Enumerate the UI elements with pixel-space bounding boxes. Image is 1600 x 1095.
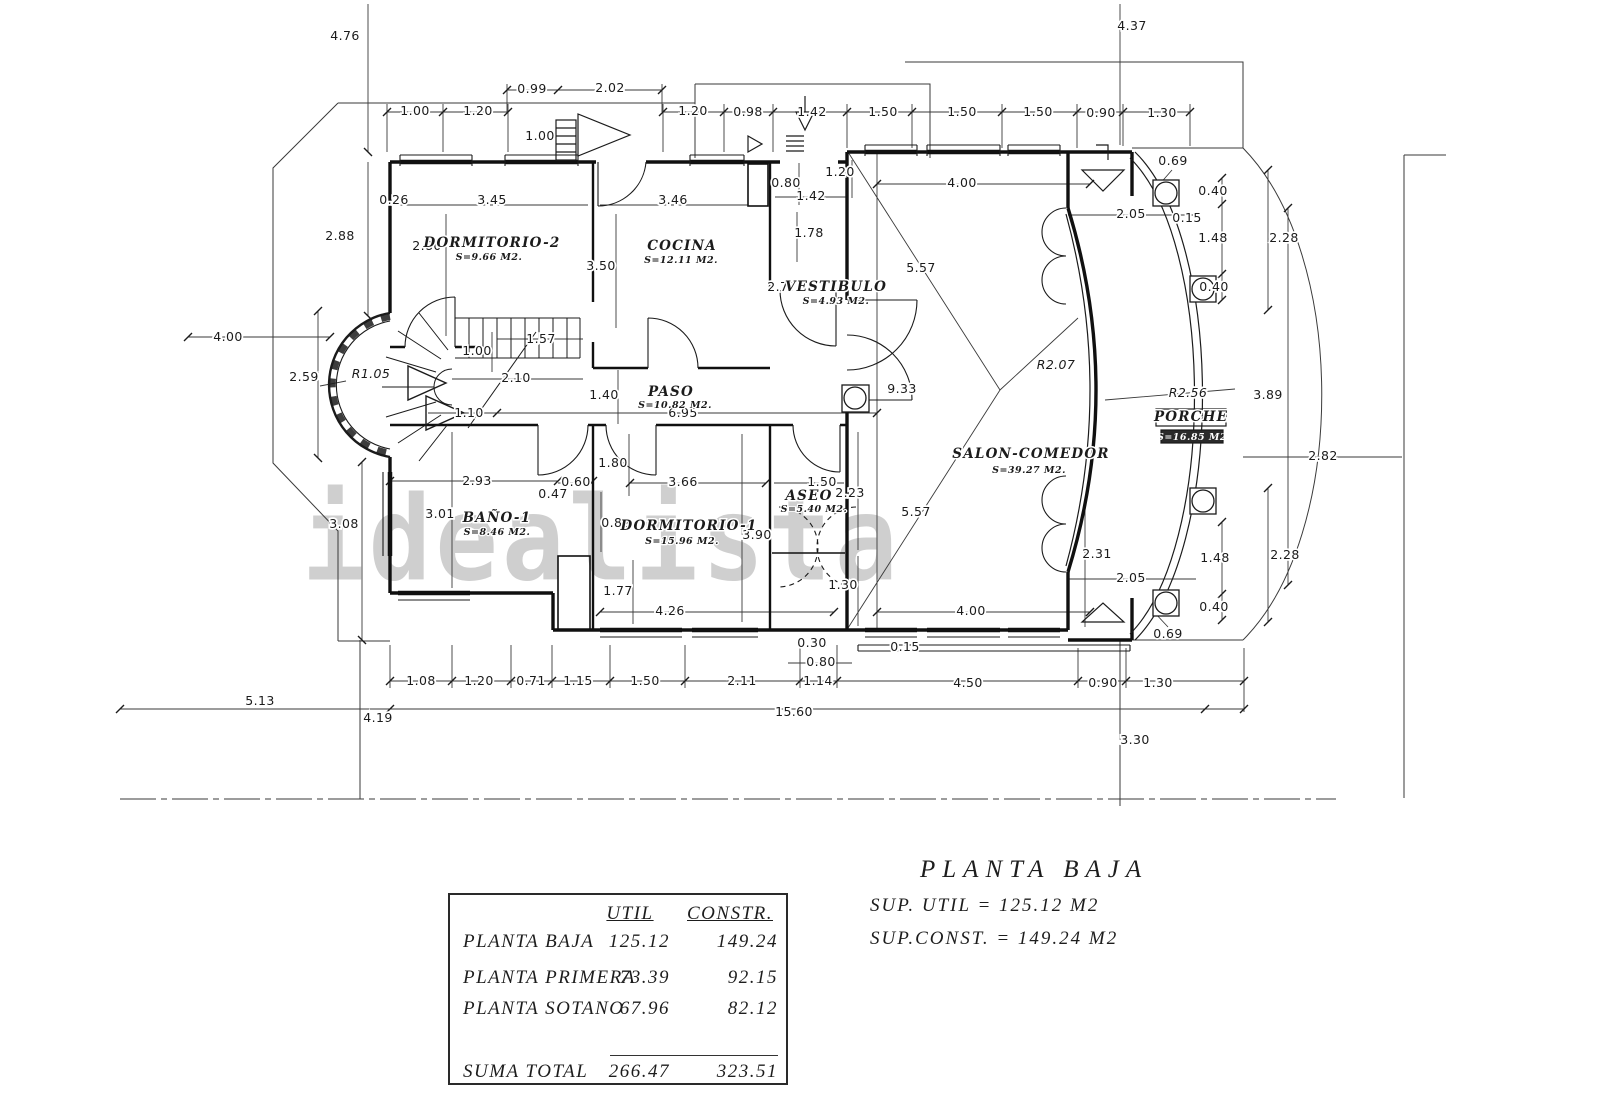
exterior-walls [390, 152, 1132, 640]
dimension-label: 1.40 [589, 387, 618, 402]
dimension-label: 0.98 [733, 104, 762, 119]
dimension-label: 3.50 [586, 258, 615, 273]
table-row: PLANTA SOTANO 67.96 82.12 [450, 998, 786, 1022]
room-name: COCINA [647, 238, 717, 254]
dimension-label: 1.14 [803, 673, 832, 688]
dimension-label: 2.59 [289, 369, 318, 384]
room-area: S=15.96 M2. [645, 536, 719, 547]
sup-util-line: SUP. UTIL = 125.12 M2 [870, 895, 1148, 917]
dimension-label: 0.40 [1198, 183, 1227, 198]
dimension-label: 0.69 [1158, 153, 1187, 168]
dimension-label: 1.78 [794, 225, 823, 240]
dimension-label: 1.50 [868, 104, 897, 119]
dimension-label: 1.30 [1143, 675, 1172, 690]
area-summary-table: UTIL CONSTR. PLANTA BAJA 125.12 149.24 P… [448, 893, 788, 1085]
dimension-label: 4.37 [1117, 18, 1146, 33]
dimension-label: 3.89 [1253, 387, 1282, 402]
total-separator [610, 1055, 778, 1056]
dimension-label: 1.48 [1200, 550, 1229, 565]
dimension-label: 4.19 [363, 710, 392, 725]
dimension-label: 3.46 [658, 192, 687, 207]
room-name: BAÑO-1 [462, 510, 532, 526]
dimension-label: 2.82 [1308, 448, 1337, 463]
dimension-label: 4.50 [953, 675, 982, 690]
table-row: PLANTA PRIMERA 73.39 92.15 [450, 967, 786, 991]
dimension-label: 1.20 [463, 103, 492, 118]
dimension-label: 2.28 [1270, 547, 1299, 562]
room-name: DORMITORIO-1 [620, 518, 758, 534]
dimension-label: 4.00 [956, 603, 985, 618]
dimension-label: 1.00 [462, 343, 491, 358]
room-area: S=39.27 M2. [992, 465, 1066, 476]
site-outline [120, 62, 1446, 806]
windows [383, 145, 1130, 651]
dimension-label: 1.20 [464, 673, 493, 688]
table-total-row: SUMA TOTAL 266.47 323.51 [450, 1061, 786, 1085]
dimension-label: 1.50 [1023, 104, 1052, 119]
dimension-label: 1.00 [525, 128, 554, 143]
floorplan-drawing: 4.764.370.992.021.001.201.200.981.421.50… [0, 0, 1600, 1095]
dimension-label: 9.33 [887, 381, 916, 396]
dimension-label: 0.80 [806, 654, 835, 669]
dimension-label: 0.47 [538, 486, 567, 501]
dimension-label: 1.42 [797, 104, 826, 119]
dimension-label: 2.88 [325, 228, 354, 243]
room-area: S=10.82 M2. [638, 400, 712, 411]
dimension-label: 0.15 [890, 639, 919, 654]
dimension-label: 1.08 [406, 673, 435, 688]
dimension-label: 0.90 [1088, 675, 1117, 690]
dimension-label: 1.30 [828, 577, 857, 592]
dimension-label: 1.15 [563, 673, 592, 688]
title-block: PLANTA BAJA SUP. UTIL = 125.12 M2 SUP.CO… [870, 856, 1148, 950]
room-name: VESTIBULO [785, 279, 887, 295]
dimension-label: 2.05 [1116, 570, 1145, 585]
dimension-label: 2.93 [462, 473, 491, 488]
room-area: S=8.46 M2. [464, 527, 531, 538]
row-util: 73.39 [570, 967, 670, 989]
dimension-label: 1.20 [825, 164, 854, 179]
dimension-label: 4.00 [213, 329, 242, 344]
dimension-label: 4.00 [947, 175, 976, 190]
dimension-label: 2.31 [1082, 546, 1111, 561]
sup-const-line: SUP.CONST. = 149.24 M2 [870, 928, 1148, 950]
room-area: S=9.66 M2. [456, 252, 523, 263]
room-name: PORCHE [1153, 409, 1228, 425]
radius-annotation: R1.05 [352, 366, 391, 381]
room-area: S=4.93 M2. [803, 296, 870, 307]
row-util: 67.96 [570, 998, 670, 1020]
dimension-label: 3.01 [425, 506, 454, 521]
row-constr: 149.24 [668, 931, 778, 953]
room-name: DORMITORIO-2 [423, 235, 561, 251]
plan-title: PLANTA BAJA [920, 856, 1148, 884]
room-area: S=16.85 M2 [1157, 432, 1227, 443]
dimension-label: 1.50 [807, 474, 836, 489]
dimension-label: 1.42 [796, 188, 825, 203]
row-util: 125.12 [570, 931, 670, 953]
dimension-label: 1.57 [526, 331, 555, 346]
dimension-label: 4.26 [655, 603, 684, 618]
row-constr: 82.12 [668, 998, 778, 1020]
dimension-label: 5.57 [901, 504, 930, 519]
dimension-label: 1.20 [678, 103, 707, 118]
dimension-label: 4.76 [330, 28, 359, 43]
dimension-label: 2.10 [501, 370, 530, 385]
dimension-label: 0.40 [1199, 279, 1228, 294]
dimension-label: 1.50 [630, 673, 659, 688]
dimension-label: 3.66 [668, 474, 697, 489]
col-header-util: UTIL [590, 903, 670, 925]
dimension-label: 0.40 [1199, 599, 1228, 614]
dimension-label: 0.26 [379, 192, 408, 207]
dimension-label: 1.48 [1198, 230, 1227, 245]
dimension-label: 1.50 [947, 104, 976, 119]
room-area: S=12.11 M2. [644, 255, 718, 266]
dimension-label: 0.15 [1172, 210, 1201, 225]
table-row: PLANTA BAJA 125.12 149.24 [450, 931, 786, 955]
dimension-label: 1.30 [1147, 105, 1176, 120]
dimension-labels: 4.764.370.992.021.001.201.200.981.421.50… [213, 18, 1337, 747]
col-header-constr: CONSTR. [682, 903, 778, 925]
radius-annotation: R2.56 [1169, 385, 1208, 400]
room-name: SALON-COMEDOR [952, 446, 1109, 462]
total-util: 266.47 [570, 1061, 670, 1083]
dimension-label: 0.99 [517, 81, 546, 96]
dimension-label: 1.00 [400, 103, 429, 118]
dimension-label: 2.11 [727, 673, 756, 688]
dimension-label: 15.60 [775, 704, 813, 719]
dimension-label: 1.10 [454, 405, 483, 420]
dimension-label: 3.30 [1120, 732, 1149, 747]
dimension-label: 2.23 [835, 485, 864, 500]
total-constr: 323.51 [668, 1061, 778, 1083]
dimension-label: 0.69 [1153, 626, 1182, 641]
floorplan-scan: idealista [0, 0, 1600, 1095]
dimension-label: 5.57 [906, 260, 935, 275]
dimension-label: 0.30 [797, 635, 826, 650]
room-name: ASEO [783, 488, 832, 504]
porch-columns [842, 180, 1216, 616]
dimension-label: 0.90 [1086, 105, 1115, 120]
dimension-label: 2.28 [1269, 230, 1298, 245]
dimension-label: 2.02 [595, 80, 624, 95]
dimension-label: 2.05 [1116, 206, 1145, 221]
dimension-label: 1.80 [598, 455, 627, 470]
dimension-label: 0.71 [516, 673, 545, 688]
row-constr: 92.15 [668, 967, 778, 989]
room-name: PASO [647, 384, 694, 400]
dimension-label: 3.08 [329, 516, 358, 531]
room-area: S=5.40 M2. [781, 504, 848, 515]
radius-annotation: R2.07 [1037, 357, 1076, 372]
dimension-label: 3.45 [477, 192, 506, 207]
dimension-label: 5.13 [245, 693, 274, 708]
dimension-label: 1.77 [603, 583, 632, 598]
